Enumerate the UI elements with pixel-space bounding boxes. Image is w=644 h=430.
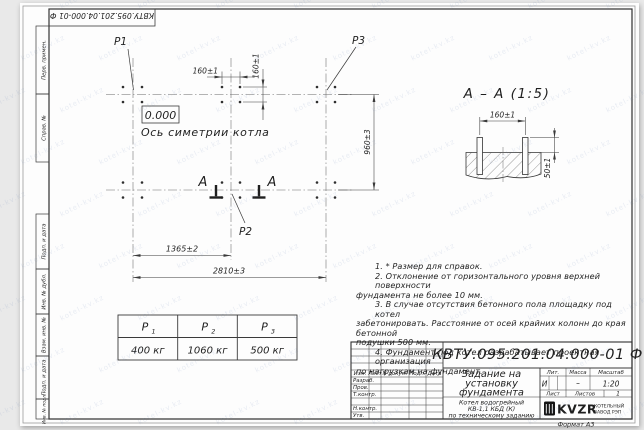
massa-value: –	[576, 379, 580, 388]
section-cut-marks	[210, 185, 266, 198]
strip-label-perv-primen: Перв. примен.	[42, 40, 48, 80]
org-line-1: КОТЕЛЬНЫЙ	[594, 403, 624, 410]
loads-header-p3: P	[261, 321, 268, 334]
loads-header-p1-sub: 1	[152, 328, 156, 336]
sheet-label: Лист	[545, 391, 561, 397]
note-line: 4. Фундамент под котел разрабатывает про…	[356, 348, 637, 367]
org-logo: KVZR КОТЕЛЬНЫЙ ЗАВОД РЭП	[544, 402, 624, 417]
sign-label-nkontr: Н.контр.	[353, 406, 377, 412]
lit-value: И	[542, 380, 548, 389]
sheets-label: Листов	[574, 391, 595, 397]
title-line-3: фундамента	[459, 388, 524, 399]
note-line: забетонировать. Расстояние от осей крайн…	[356, 319, 637, 338]
sign-label-razrab: Разраб.	[353, 378, 374, 384]
dim-960: 960±3	[338, 95, 379, 191]
dim-1365: 1365±2	[133, 245, 231, 257]
loads-value-p2: 1060 кг	[188, 346, 229, 357]
anchor-bolt-points	[122, 86, 337, 199]
load-label-p1: P1	[114, 36, 127, 48]
sheets-value: 1	[616, 390, 620, 397]
note-line: 2. Отклонение от горизонтального уровня …	[356, 272, 637, 291]
plan-centerlines	[106, 58, 352, 282]
section-title: А – А (1:5)	[463, 86, 551, 102]
loads-header-p2-sub: 2	[211, 328, 215, 336]
section-view: А – А (1:5) 160±1 50±1	[463, 86, 559, 183]
sign-label-utv: Утв.	[353, 413, 364, 419]
product-name: Котел водогрейный КВ-1,1 КБД (К) по техн…	[448, 400, 534, 420]
strip-label-sprav-n: Справ. №	[42, 115, 48, 141]
masshtab-value: 1:20	[603, 380, 620, 389]
loads-table: P 1 P 2 P 3 400 кг 1060 кг 500 кг	[118, 315, 297, 360]
plan-view: P1 P3 P2 0.000 Ось симетрии котла А А 1	[106, 35, 379, 282]
load-label-p2: P2	[239, 226, 252, 238]
load-label-p3: P3	[352, 35, 365, 47]
loads-header-p3-sub: 3	[271, 328, 275, 336]
format-label: Формат А3	[557, 421, 594, 429]
note-line: по нагрузкам на фундамент.	[356, 367, 637, 377]
dim-160-section: 160±1	[480, 111, 526, 136]
section-letter-left: А	[198, 175, 208, 190]
technical-notes: 1. * Размер для справок. 2. Отклонение о…	[356, 262, 637, 377]
strip-label-inv-podl: Инв. № подл.	[42, 394, 48, 424]
strip-label-inv-dubl: Инв. № дубл.	[42, 273, 48, 309]
logo-text: KVZR	[557, 402, 597, 417]
dim-160-section-label: 160±1	[490, 111, 515, 120]
product-line-3: по техническому заданию	[448, 413, 534, 420]
side-strip-labels: Перв. примен. Справ. № Подп. и дата Инв.…	[42, 40, 48, 424]
dim-160-horizontal: 160±1	[193, 67, 255, 85]
corner-stamp: КВТУ.095.201.04.000-01 Ф	[49, 9, 155, 26]
loads-value-p1: 400 кг	[131, 346, 165, 357]
loads-header-p2: P	[201, 321, 208, 334]
strip-label-podp-data-2: Подп. и дата	[42, 359, 48, 395]
corner-stamp-doc-number: КВТУ.095.201.04.000-01 Ф	[50, 11, 154, 20]
note-line: 3. В случае отсутствия бетонного пола пл…	[356, 300, 637, 319]
loads-value-p3: 500 кг	[250, 346, 284, 357]
strip-label-vzam-inv: Взам. инв. №	[42, 317, 48, 353]
dim-2810-label: 2810±3	[213, 267, 245, 276]
dim-160-h-label: 160±1	[193, 67, 218, 76]
drawing-page: Перв. примен. Справ. № Подп. и дата Инв.…	[0, 0, 644, 430]
section-letter-right: А	[267, 175, 277, 190]
org-line-2: ЗАВОД РЭП	[594, 410, 621, 416]
strip-label-podp-data-1: Подп. и дата	[42, 223, 48, 259]
boiler-axis-label: Ось симетрии котла	[141, 126, 270, 139]
dim-960-label: 960±3	[363, 129, 372, 155]
sign-label-tkontr: Т.контр.	[353, 392, 376, 398]
dim-1365-label: 1365±2	[166, 245, 198, 254]
dim-50-section-label: 50±1	[543, 158, 552, 179]
dim-160-vertical: 160±1	[243, 53, 267, 120]
sign-label-prov: Пров.	[353, 385, 369, 391]
dim-2810: 2810±3	[133, 267, 326, 279]
zero-level-value: 0.000	[145, 109, 177, 122]
dim-160-v-label: 160±1	[252, 53, 261, 78]
loads-header-p1: P	[142, 321, 149, 334]
